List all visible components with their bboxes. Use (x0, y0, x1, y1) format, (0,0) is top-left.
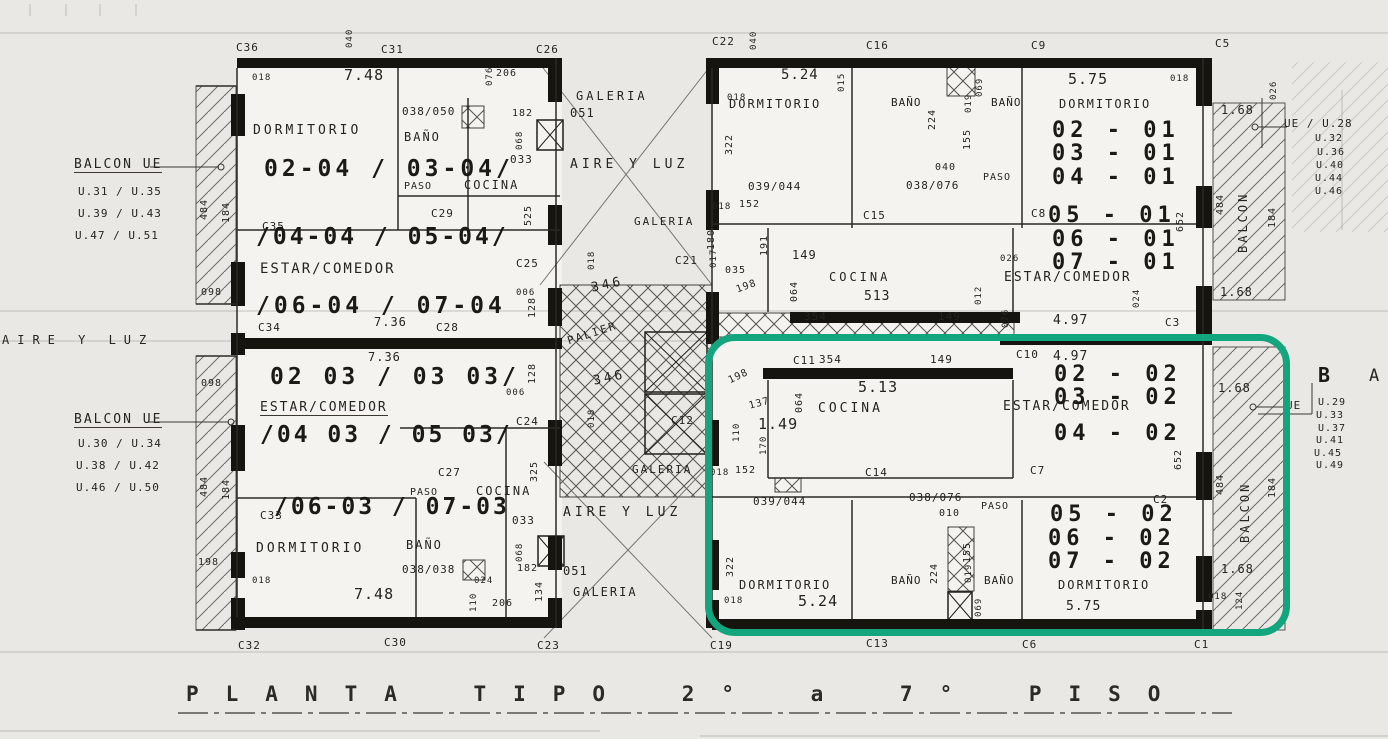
plan-label: 038/038 (402, 564, 455, 575)
plan-label: 149 (792, 249, 817, 261)
plan-label: 206 (496, 69, 517, 79)
plan-label: U.37 (1318, 424, 1346, 434)
plan-label: C24 (516, 416, 539, 427)
plan-label: C26 (536, 44, 559, 55)
sheet-title: PLANTA TIPO 2° a 7° PISO (186, 682, 1187, 706)
plan-label: BAÑO (891, 97, 922, 108)
plan-label: U.47 / U.51 (75, 230, 159, 241)
plan-label: 198 (735, 279, 758, 296)
plan-label: 484 (200, 199, 210, 220)
plan-label: AIRE Y LUZ (2, 334, 154, 346)
plan-label: U.33 (1316, 411, 1344, 421)
plan-label: C5 (1215, 38, 1230, 49)
plan-label: 191 (760, 235, 770, 256)
plan-label: /04-04 / 05-04/ (256, 226, 509, 249)
plan-label: C34 (258, 322, 281, 333)
plan-label: 018 (252, 577, 271, 586)
plan-label: 525 (524, 205, 534, 226)
plan-label: BAÑO (406, 539, 443, 551)
plan-label: C28 (436, 322, 459, 333)
plan-label: PASO (404, 182, 432, 192)
plan-label: 07 - 01 (1052, 252, 1180, 274)
plan-label: 484 (200, 476, 210, 497)
plan-label: C30 (384, 637, 407, 648)
plan-label: 040 (346, 29, 355, 48)
plan-label: U.29 (1318, 398, 1346, 408)
plan-label: GALERIA (632, 464, 692, 475)
plan-label: 05 - 01 (1048, 205, 1176, 227)
plan-label: 051 (570, 107, 595, 119)
plan-label: 076 (1002, 309, 1011, 328)
plan-label: U.44 (1315, 174, 1343, 184)
plan-label: 068 (516, 543, 525, 562)
plan-label: 069 (976, 78, 985, 97)
plan-label: DORMITORIO (253, 124, 361, 137)
plan-label: B (1318, 365, 1331, 385)
floor-plan-sheet: C36C31C26C22C16C9C5C35C29C25C34C28C24C27… (0, 0, 1388, 739)
plan-label: 02 03 / 03 03/ (270, 366, 520, 389)
plan-label: 068 (516, 131, 525, 150)
plan-label: 026 (1000, 255, 1019, 264)
plan-label: DORMITORIO (256, 542, 364, 555)
plan-label: 155 (963, 129, 973, 150)
plan-label: AIRE Y LUZ (563, 506, 681, 519)
plan-label: /06-03 / 07-03 (274, 496, 510, 519)
plan-label: 018 (1170, 75, 1189, 84)
plan-label: U.46 (1315, 187, 1343, 197)
plan-label: PALIER (566, 320, 619, 346)
plan-label: 033 (512, 515, 535, 526)
plan-label: DORMITORIO (1059, 98, 1151, 110)
plan-label: C27 (438, 467, 461, 478)
plan-label: BALCON (1237, 192, 1249, 253)
plan-label: 7.48 (344, 68, 384, 83)
plan-label: BALCON UE (74, 158, 162, 173)
plan-label: GALERIA (576, 90, 648, 102)
plan-label: 024 (1133, 289, 1142, 308)
plan-label: 051 (563, 565, 588, 577)
plan-label: C25 (516, 258, 539, 269)
plan-label: 224 (928, 109, 938, 130)
plan-label: 346 (592, 368, 626, 387)
plan-label: 110 (470, 593, 479, 612)
plan-label: 354 (804, 311, 827, 322)
plan-label: 128 (528, 363, 538, 384)
plan-label: 015 (838, 73, 847, 92)
plan-label: 182 (512, 109, 533, 119)
plan-label: A (1369, 368, 1380, 385)
plan-label: U.41 (1316, 436, 1344, 446)
plan-label: U.45 (1314, 449, 1342, 459)
plan-label: BALCON UE (74, 413, 162, 428)
plan-label: 5.24 (781, 68, 819, 82)
plan-label: C12 (671, 415, 694, 426)
plan-label: GALERIA (634, 216, 694, 227)
plan-label: 026 (1270, 81, 1279, 100)
plan-label: 024 (474, 577, 493, 586)
plan-label: C23 (537, 640, 560, 651)
plan-label: COCINA (829, 271, 890, 283)
plan-label: U.31 / U.35 (78, 186, 162, 197)
plan-label: U.39 / U.43 (78, 208, 162, 219)
plan-label: 018 (727, 94, 746, 103)
plan-label: C21 (675, 255, 698, 266)
plan-label: C8 (1031, 208, 1046, 219)
plan-label: C1 (1194, 639, 1209, 650)
plan-label: 198 (198, 558, 219, 568)
plan-label: U.40 (1316, 161, 1344, 171)
plan-label: 098 (201, 379, 222, 389)
plan-label: 4.97 (1053, 314, 1088, 327)
plan-label: 134 (535, 581, 545, 602)
plan-label: 076 (486, 67, 495, 86)
plan-label: 012 (975, 286, 984, 305)
plan-label: /04 03 / 05 03/ (260, 424, 513, 447)
plan-label: 04 - 01 (1052, 167, 1180, 189)
plan-label: 040 (750, 31, 759, 50)
plan-label: UE / U.28 (1284, 118, 1353, 129)
plan-label: C31 (381, 44, 404, 55)
plan-label: BAÑO (991, 97, 1022, 108)
plan-label: C13 (866, 638, 889, 649)
plan-label: 040 (935, 163, 956, 173)
plan-label: 7.36 (374, 316, 407, 328)
plan-label: 513 (864, 290, 890, 303)
plan-label: C22 (712, 36, 735, 47)
plan-label: 019 (965, 94, 974, 113)
plan-label: 006 (506, 389, 525, 398)
plan-label: 018 (588, 409, 597, 428)
plan-label: 02 - 01 (1052, 120, 1180, 142)
plan-label: C19 (710, 640, 733, 651)
plan-label: 039/044 (748, 181, 801, 192)
plan-label: 1.68 (1221, 104, 1254, 116)
plan-label: 018 (712, 203, 731, 212)
plan-label: C9 (1031, 40, 1046, 51)
plan-label: 03 - 01 (1052, 143, 1180, 165)
plan-label: U.32 (1315, 134, 1343, 144)
plan-label: 033 (510, 154, 533, 165)
plan-label: 184 (222, 479, 232, 500)
plan-label: C29 (431, 208, 454, 219)
plan-label: 322 (725, 134, 735, 155)
plan-label: 098 (201, 288, 222, 298)
plan-label: PASO (983, 173, 1011, 183)
highlight-region (705, 334, 1290, 636)
plan-label: 325 (530, 461, 540, 482)
plan-label: U.30 / U.34 (78, 438, 162, 449)
plan-label: C3 (1165, 317, 1180, 328)
plan-label: ESTAR/COMEDOR (260, 262, 396, 276)
plan-label: U.38 / U.42 (76, 460, 160, 471)
plan-label: 206 (492, 599, 513, 609)
plan-label: BAÑO (404, 131, 441, 143)
plan-label: 018 (252, 74, 271, 83)
plan-label: U.49 (1316, 461, 1344, 471)
plan-label: 035 (725, 266, 746, 276)
plan-label: 149 (938, 311, 961, 322)
plan-label: C15 (863, 210, 886, 221)
plan-label: 017 (710, 249, 719, 268)
plan-label: C16 (866, 40, 889, 51)
plan-label: 018 (588, 251, 597, 270)
plan-label: 180 (707, 229, 717, 250)
plan-label: AIRE Y LUZ (570, 158, 688, 171)
plan-label: GALERIA (573, 586, 638, 598)
plan-label: U.46 / U.50 (76, 482, 160, 493)
plan-label: U.36 (1317, 148, 1345, 158)
plan-label: 038/050 (402, 106, 455, 117)
plan-label: C32 (238, 640, 261, 651)
plan-label: 02-04 / 03-04/ (264, 158, 514, 181)
plan-label: 7.36 (368, 351, 401, 363)
plan-label: 5.75 (1068, 72, 1108, 87)
plan-label: 184 (222, 202, 232, 223)
plan-label: ESTAR/COMEDOR (260, 401, 388, 416)
plan-label: 182 (517, 564, 538, 574)
plan-label: 038/076 (906, 180, 959, 191)
plan-label: 184 (1268, 207, 1278, 228)
plan-label: 06 - 01 (1052, 229, 1180, 251)
plan-label: 128 (528, 297, 538, 318)
plan-label: 652 (1176, 211, 1186, 232)
plan-label: C6 (1022, 639, 1037, 650)
plan-label: 7.48 (354, 587, 394, 602)
plan-label: C36 (236, 42, 259, 53)
plan-label: 346 (590, 275, 624, 294)
plan-label: 484 (1216, 194, 1226, 215)
plan-label: 1.68 (1220, 286, 1253, 298)
plan-label: 064 (790, 281, 800, 302)
plan-label: 152 (739, 200, 760, 210)
